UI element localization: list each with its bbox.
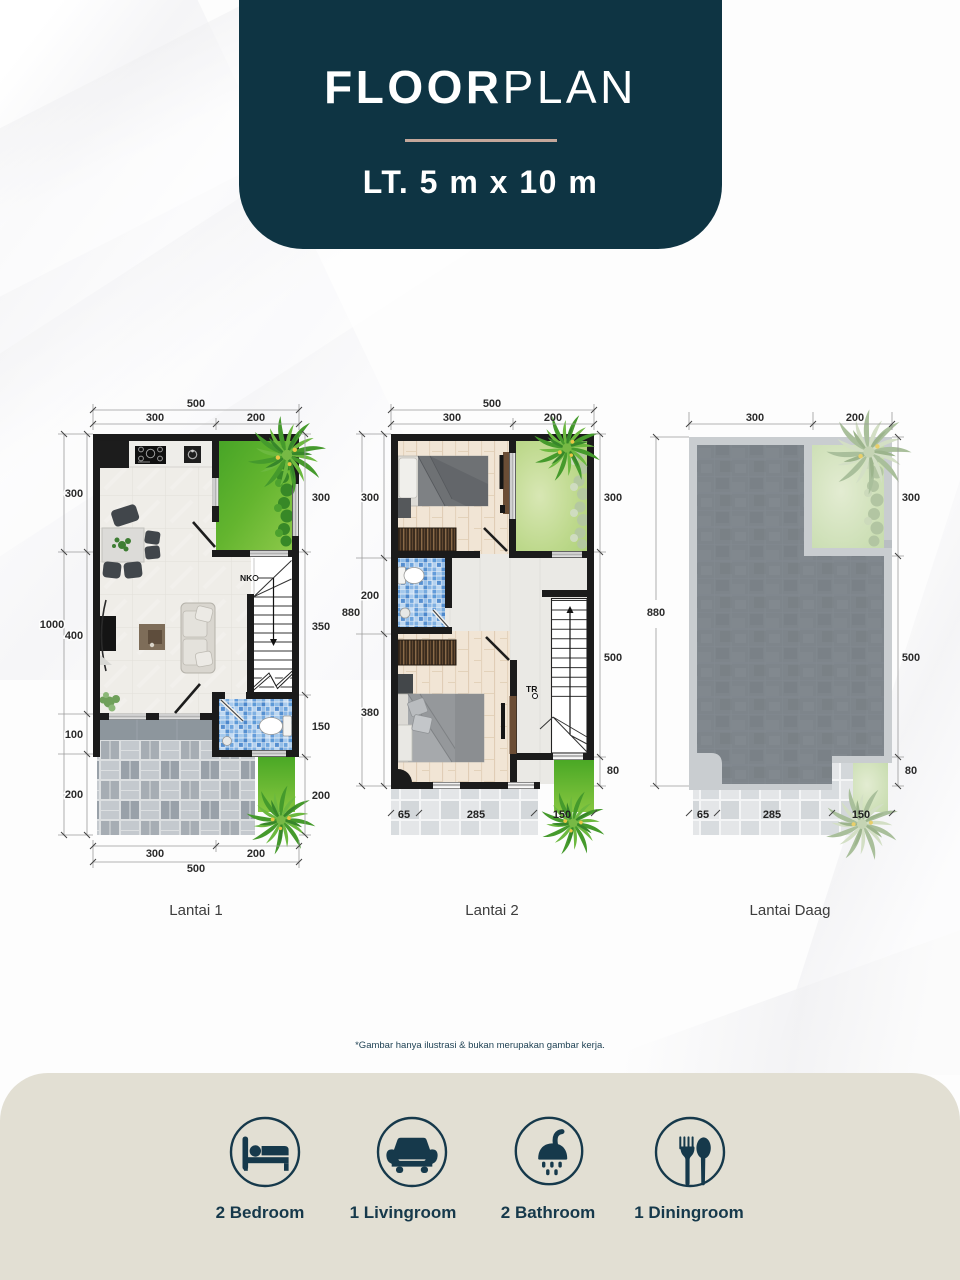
- svg-text:200: 200: [65, 789, 83, 801]
- svg-text:300: 300: [65, 488, 83, 500]
- svg-text:380: 380: [361, 707, 379, 719]
- svg-text:285: 285: [763, 809, 781, 821]
- svg-text:200: 200: [544, 412, 562, 424]
- svg-text:100: 100: [65, 729, 83, 741]
- svg-text:65: 65: [697, 809, 709, 821]
- svg-text:80: 80: [607, 765, 619, 777]
- svg-text:300: 300: [146, 848, 164, 860]
- svg-text:500: 500: [604, 652, 622, 664]
- svg-text:200: 200: [361, 590, 379, 602]
- svg-text:300: 300: [902, 492, 920, 504]
- svg-text:350: 350: [312, 621, 330, 633]
- svg-text:150: 150: [852, 809, 870, 821]
- svg-text:300: 300: [361, 492, 379, 504]
- svg-text:880: 880: [342, 607, 360, 619]
- svg-text:500: 500: [187, 398, 205, 410]
- svg-text:300: 300: [146, 412, 164, 424]
- svg-text:80: 80: [905, 765, 917, 777]
- svg-text:300: 300: [604, 492, 622, 504]
- svg-text:200: 200: [846, 412, 864, 424]
- svg-text:1000: 1000: [40, 619, 64, 631]
- svg-text:880: 880: [647, 607, 665, 619]
- svg-text:300: 300: [746, 412, 764, 424]
- svg-text:285: 285: [467, 809, 485, 821]
- svg-text:200: 200: [247, 848, 265, 860]
- svg-text:150: 150: [553, 809, 571, 821]
- svg-text:300: 300: [312, 492, 330, 504]
- svg-text:200: 200: [312, 790, 330, 802]
- svg-text:500: 500: [187, 863, 205, 875]
- svg-text:500: 500: [902, 652, 920, 664]
- svg-text:TR: TR: [526, 684, 537, 694]
- svg-text:500: 500: [483, 398, 501, 410]
- svg-text:NK: NK: [240, 573, 253, 583]
- svg-text:400: 400: [65, 630, 83, 642]
- svg-text:200: 200: [247, 412, 265, 424]
- svg-text:150: 150: [312, 721, 330, 733]
- svg-text:300: 300: [443, 412, 461, 424]
- svg-text:65: 65: [398, 809, 410, 821]
